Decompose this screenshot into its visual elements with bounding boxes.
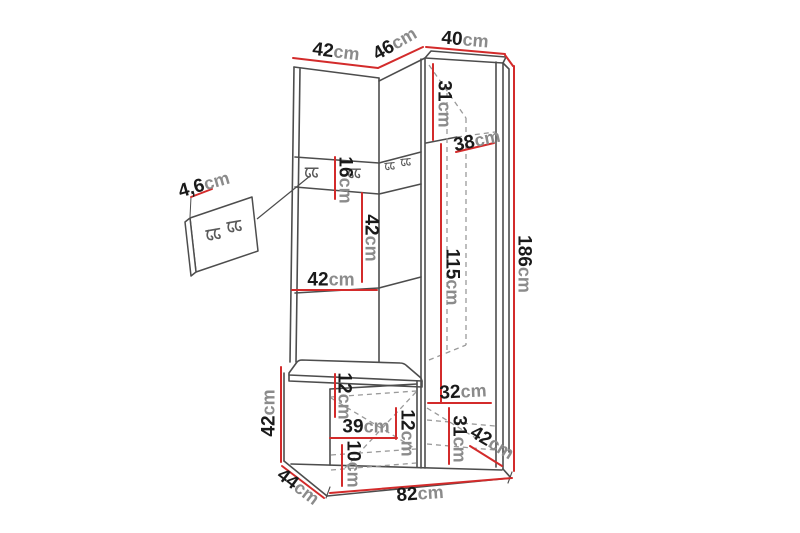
dim-unit: cm [398, 431, 418, 457]
dim-total-height: 186cm [515, 235, 534, 293]
dim-value: 12 [334, 372, 355, 393]
dim-seat-thickness: 12cm [335, 372, 354, 419]
dim-value: 31 [449, 415, 470, 436]
dim-value: 186 [514, 235, 535, 267]
dim-unit: cm [344, 462, 364, 488]
dim-value: 32 [439, 382, 461, 404]
dim-value: 42 [259, 415, 280, 436]
dim-bench-interior-width: 39cm [342, 418, 389, 437]
dim-cabinet-interior-height: 115cm [443, 249, 462, 306]
dim-value: 115 [442, 249, 463, 280]
dim-value: 42 [361, 214, 382, 235]
dim-middle-section-height: 42cm [362, 214, 381, 261]
dim-value: 10 [343, 440, 364, 461]
dim-value: 16 [335, 156, 356, 177]
dim-value: 42 [311, 39, 335, 62]
dim-bench-shelf-height: 12cm [398, 409, 417, 456]
dim-unit: cm [364, 417, 390, 437]
dim-value: 42 [307, 270, 328, 291]
dim-unit: cm [462, 29, 490, 51]
dim-unit: cm [417, 482, 444, 504]
dim-middle-section-width: 42cm [307, 271, 354, 290]
product-dimension-image: 42cm 46cm 40cm 31cm 38cm 16cm 42cm 42cm … [0, 0, 800, 533]
dim-bench-bottom-height: 10cm [344, 440, 363, 487]
dim-value: 39 [342, 417, 363, 438]
dim-unit: cm [443, 279, 463, 305]
coat-hook-icon [401, 159, 411, 166]
dim-top-width-right: 40cm [441, 28, 490, 51]
callout-leader-line [257, 176, 310, 219]
dim-unit: cm [259, 389, 279, 415]
dim-value: 40 [441, 27, 464, 50]
dim-total-width: 82cm [396, 483, 444, 505]
dimline-total-height-connector [505, 55, 513, 66]
dim-bench-height: 42cm [260, 389, 279, 436]
dim-unit: cm [329, 270, 355, 290]
dim-unit: cm [435, 102, 455, 128]
dim-hook-panel-height: 16cm [336, 156, 355, 203]
dim-lower-cabinet-width: 32cm [439, 381, 487, 402]
dim-value: 31 [434, 80, 455, 101]
dim-unit: cm [362, 236, 382, 262]
dim-unit: cm [336, 178, 356, 204]
coat-hook-icon [385, 163, 395, 170]
dim-unit: cm [460, 380, 487, 401]
dim-unit: cm [332, 41, 360, 64]
coat-hook-icon [305, 168, 318, 177]
dim-value: 82 [396, 484, 419, 506]
dim-upper-cabinet-section-height: 31cm [435, 80, 454, 127]
dim-unit: cm [515, 267, 535, 293]
dim-value: 12 [397, 409, 418, 430]
